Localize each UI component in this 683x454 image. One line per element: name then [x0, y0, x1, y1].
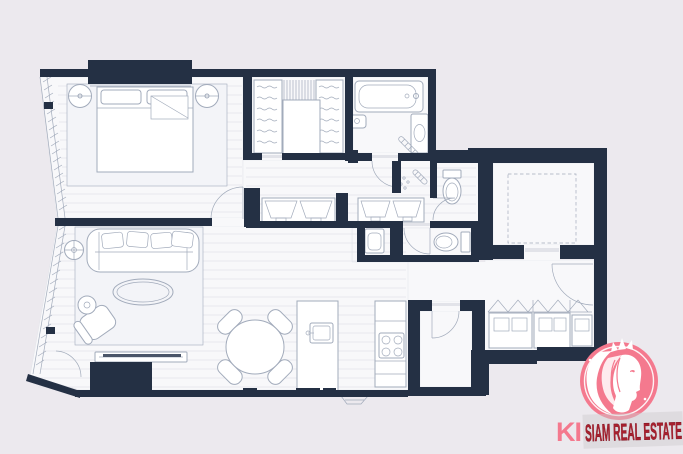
entry-patch	[524, 245, 560, 260]
hallway-floor	[403, 262, 484, 302]
sofa	[87, 229, 199, 272]
lift-bottom-wall-left	[478, 245, 524, 259]
bedside-lamp-right	[196, 85, 219, 108]
wardrobe-bottom-wall	[246, 221, 348, 228]
floor-lamp	[65, 241, 84, 260]
lift-threshold	[525, 248, 559, 252]
closet-bottom-wall	[282, 153, 345, 160]
window-block	[88, 60, 192, 84]
cluster-bottom-wall-left	[348, 221, 403, 228]
wardrobe-right-block	[336, 193, 348, 227]
side-table	[78, 296, 96, 314]
bedside-lamp-left	[69, 85, 92, 108]
bedroom-door-patch	[212, 218, 244, 226]
closet-threshold	[262, 155, 282, 158]
bedroom-right-wall	[243, 75, 252, 160]
wc-b-threshold	[403, 223, 430, 226]
shower-divider-stub	[392, 161, 401, 193]
round-dining-table	[226, 320, 284, 374]
closet-shelf-left	[254, 80, 282, 153]
window-marker-3	[323, 388, 336, 397]
laundry-divider	[390, 227, 403, 258]
tv-console	[95, 352, 187, 362]
kitchen-corner-wall	[408, 300, 420, 395]
window-marker-2	[296, 388, 320, 397]
tv-screen	[103, 354, 181, 357]
screenshot-canvas: KI SIAM REAL ESTATE	[0, 0, 683, 454]
watermark-prefix: KI	[556, 417, 581, 447]
closet-island	[283, 100, 320, 155]
glazing-mullion-lower	[46, 327, 55, 334]
closet-bath-divider	[345, 69, 353, 161]
wc-b-right-wall	[471, 221, 479, 262]
vent-mark	[341, 396, 368, 404]
built-in-wardrobe-1	[262, 198, 335, 224]
wc-a-left-wall	[430, 160, 437, 198]
store-top-wall-right	[460, 300, 484, 311]
closet-bottom-stub	[252, 153, 262, 160]
window-marker-1	[243, 388, 257, 397]
lift-bottom-wall-right	[560, 245, 607, 259]
cluster2-bottom-wall	[357, 255, 479, 262]
toilet	[443, 170, 461, 204]
foyer-passage-patch	[472, 262, 486, 300]
bedroom-living-divider	[55, 218, 212, 226]
washing-machine	[365, 229, 384, 253]
bathroom-right-wall	[428, 69, 436, 157]
store-room-floor	[420, 311, 472, 387]
toilet-b	[434, 232, 470, 252]
kitchen-island	[297, 301, 338, 393]
corridor-stub	[348, 150, 358, 163]
floorplan-image: KI SIAM REAL ESTATE	[0, 0, 683, 454]
shoe-cabinet	[489, 313, 592, 348]
bath-threshold	[372, 155, 398, 158]
bathtub	[355, 81, 423, 112]
structural-column	[90, 362, 152, 395]
kitchen-counter	[375, 301, 406, 387]
built-in-wardrobe-2	[358, 198, 424, 222]
store-threshold	[432, 303, 460, 306]
watermark-brand: SIAM REAL ESTATE	[585, 418, 683, 448]
lift-top-wall	[468, 148, 607, 163]
vanity-basin	[411, 114, 428, 153]
foyer-step-wall	[471, 350, 537, 364]
glazing-mullion-upper	[44, 102, 53, 109]
double-bed	[97, 87, 193, 172]
kitchen-bottom-wall	[408, 387, 486, 396]
bath-bottom-wall-right	[398, 153, 432, 161]
